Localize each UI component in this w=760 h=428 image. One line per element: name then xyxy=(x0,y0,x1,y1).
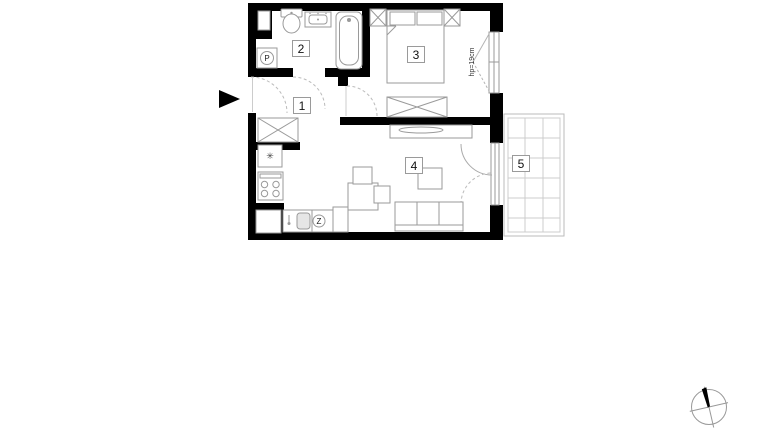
nightstand-left-icon xyxy=(370,9,386,26)
bathtub-icon xyxy=(336,12,362,69)
chair-icon xyxy=(374,186,390,203)
floorplan-page: 1 2 3 4 5 P Z ✳ hp=19cm xyxy=(0,0,760,428)
bedroom-furniture xyxy=(370,9,460,117)
floorplan-drawing xyxy=(0,0,760,428)
washing-machine-marker: P xyxy=(261,53,273,64)
hall-wardrobe-icon xyxy=(258,118,298,142)
kitchen-tall-unit xyxy=(333,207,348,232)
living-room-furniture xyxy=(348,125,472,231)
entrance-arrow-icon xyxy=(219,90,240,108)
balcony-tile-grid xyxy=(508,118,560,232)
stove-icon xyxy=(258,172,283,200)
chair-icon xyxy=(353,167,372,184)
balcony xyxy=(504,114,564,236)
room-label-5: 5 xyxy=(512,155,530,172)
north-compass-icon xyxy=(690,387,728,428)
toilet-icon xyxy=(281,9,302,33)
bedroom-wardrobe-icon xyxy=(387,97,447,117)
door-swings xyxy=(251,77,377,116)
washbasin-icon xyxy=(305,12,331,27)
bedroom-window xyxy=(489,32,499,93)
room-label-3: 3 xyxy=(407,46,425,63)
dishwasher-marker: Z xyxy=(313,216,325,227)
tv-sideboard-icon xyxy=(390,125,472,138)
room-label-4: 4 xyxy=(405,157,423,174)
sofa-icon xyxy=(395,202,463,231)
room-label-1: 1 xyxy=(293,97,311,114)
window-sill-height-label: hp=19cm xyxy=(468,42,478,82)
room-label-2: 2 xyxy=(292,40,310,57)
kitchen-asterisk-marker: ✳ xyxy=(262,149,278,163)
balcony-door xyxy=(461,143,499,205)
nightstand-right-icon xyxy=(444,9,460,26)
